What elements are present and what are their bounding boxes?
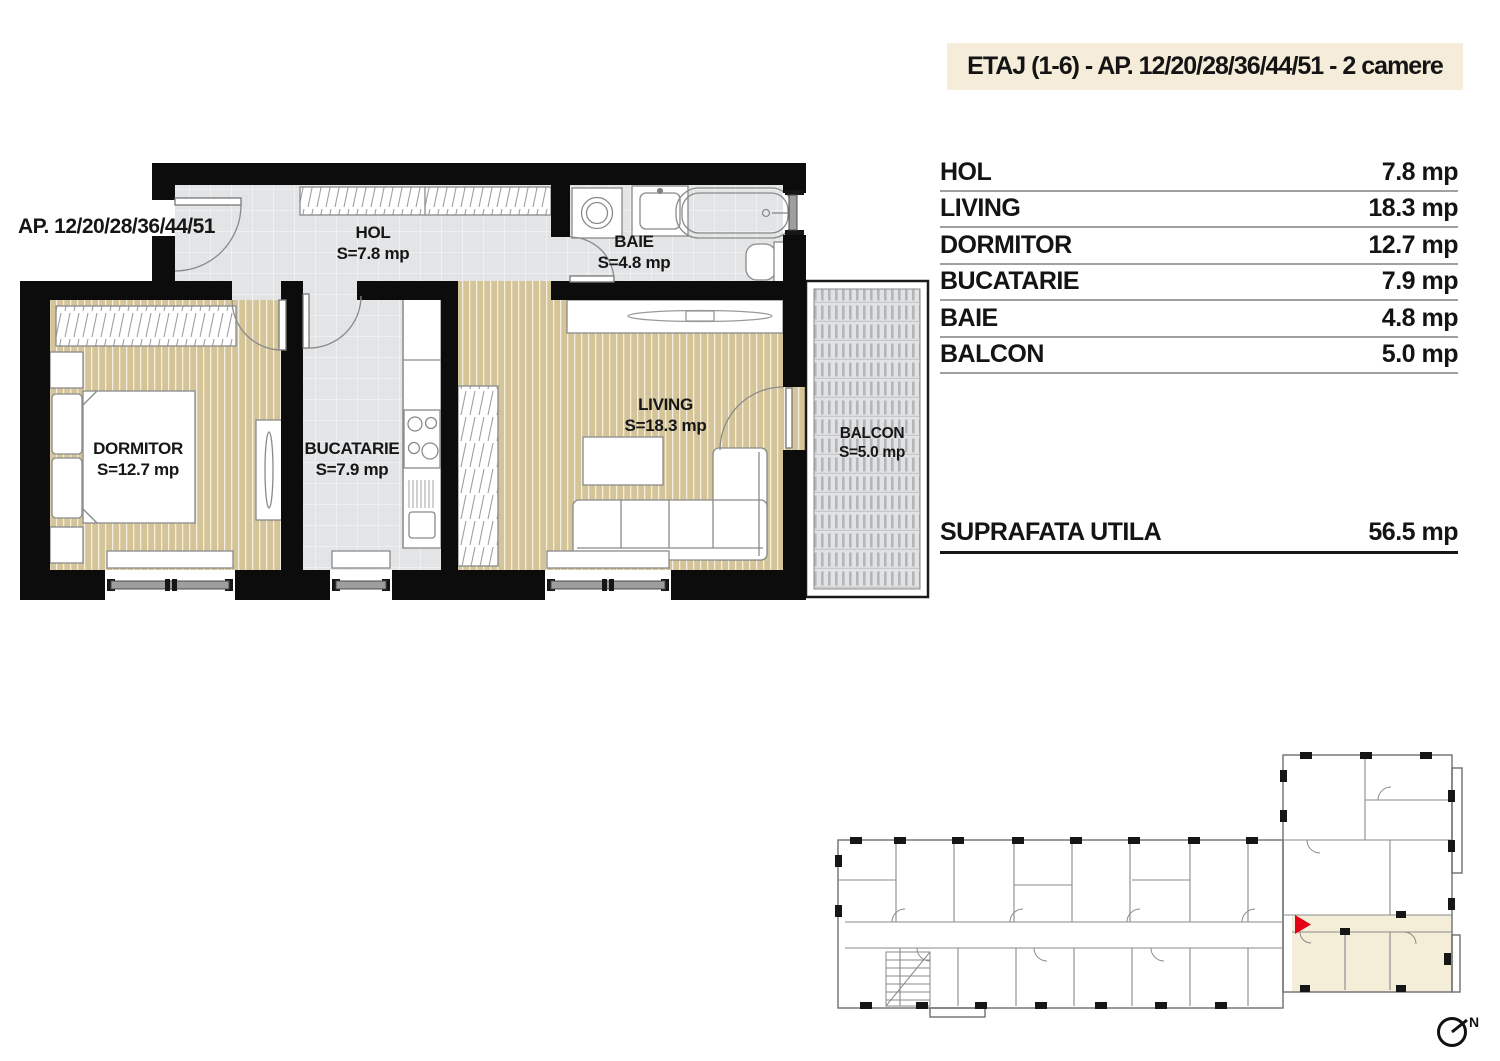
stairs bbox=[886, 952, 930, 1006]
window-living bbox=[547, 579, 669, 591]
sideboard bbox=[567, 300, 783, 333]
room-label-balcon: BALCON S=5.0 mp bbox=[817, 424, 927, 463]
areas-table: HOL7.8 mp LIVING18.3 mp DORMITOR12.7 mp … bbox=[940, 155, 1458, 554]
window-bucatarie bbox=[332, 579, 390, 591]
window-dormitor bbox=[107, 579, 233, 591]
bedroom-wardrobe bbox=[56, 306, 236, 346]
apartment-label: AP. 12/20/28/36/44/51 bbox=[18, 215, 215, 239]
radiator bbox=[547, 551, 669, 568]
tv-stand bbox=[458, 386, 498, 566]
north-compass-icon: N bbox=[1439, 1014, 1480, 1046]
table-row: LIVING18.3 mp bbox=[940, 192, 1458, 229]
room-label-living: LIVING S=18.3 mp bbox=[578, 394, 753, 437]
key-plan bbox=[835, 752, 1462, 1017]
nightstand bbox=[50, 527, 83, 563]
coffee-table bbox=[583, 437, 663, 485]
table-row: BAIE4.8 mp bbox=[940, 301, 1458, 338]
room-label-baie: BAIE S=4.8 mp bbox=[559, 231, 709, 274]
table-row: HOL7.8 mp bbox=[940, 155, 1458, 192]
north-label: N bbox=[1469, 1014, 1479, 1030]
highlighted-apartment bbox=[1292, 915, 1452, 992]
radiator bbox=[107, 551, 233, 568]
table-row: BALCON5.0 mp bbox=[940, 338, 1458, 375]
page: N AP. 12/20/28/36/44/51 HOL S=7.8 mp BAI… bbox=[0, 0, 1500, 1061]
table-row: BUCATARIE7.9 mp bbox=[940, 265, 1458, 302]
nightstand bbox=[50, 352, 83, 388]
radiator bbox=[332, 551, 390, 568]
page-title: ETAJ (1-6) - AP. 12/20/28/36/44/51 - 2 c… bbox=[967, 52, 1443, 81]
room-label-hol: HOL S=7.8 mp bbox=[298, 222, 448, 265]
room-label-bucatarie: BUCATARIE S=7.9 mp bbox=[262, 438, 442, 481]
title-banner: ETAJ (1-6) - AP. 12/20/28/36/44/51 - 2 c… bbox=[947, 43, 1463, 90]
total-row: SUPRAFATA UTILA56.5 mp bbox=[940, 514, 1458, 554]
toilet bbox=[746, 242, 785, 282]
table-row: DORMITOR12.7 mp bbox=[940, 228, 1458, 265]
room-label-dormitor: DORMITOR S=12.7 mp bbox=[43, 438, 233, 481]
